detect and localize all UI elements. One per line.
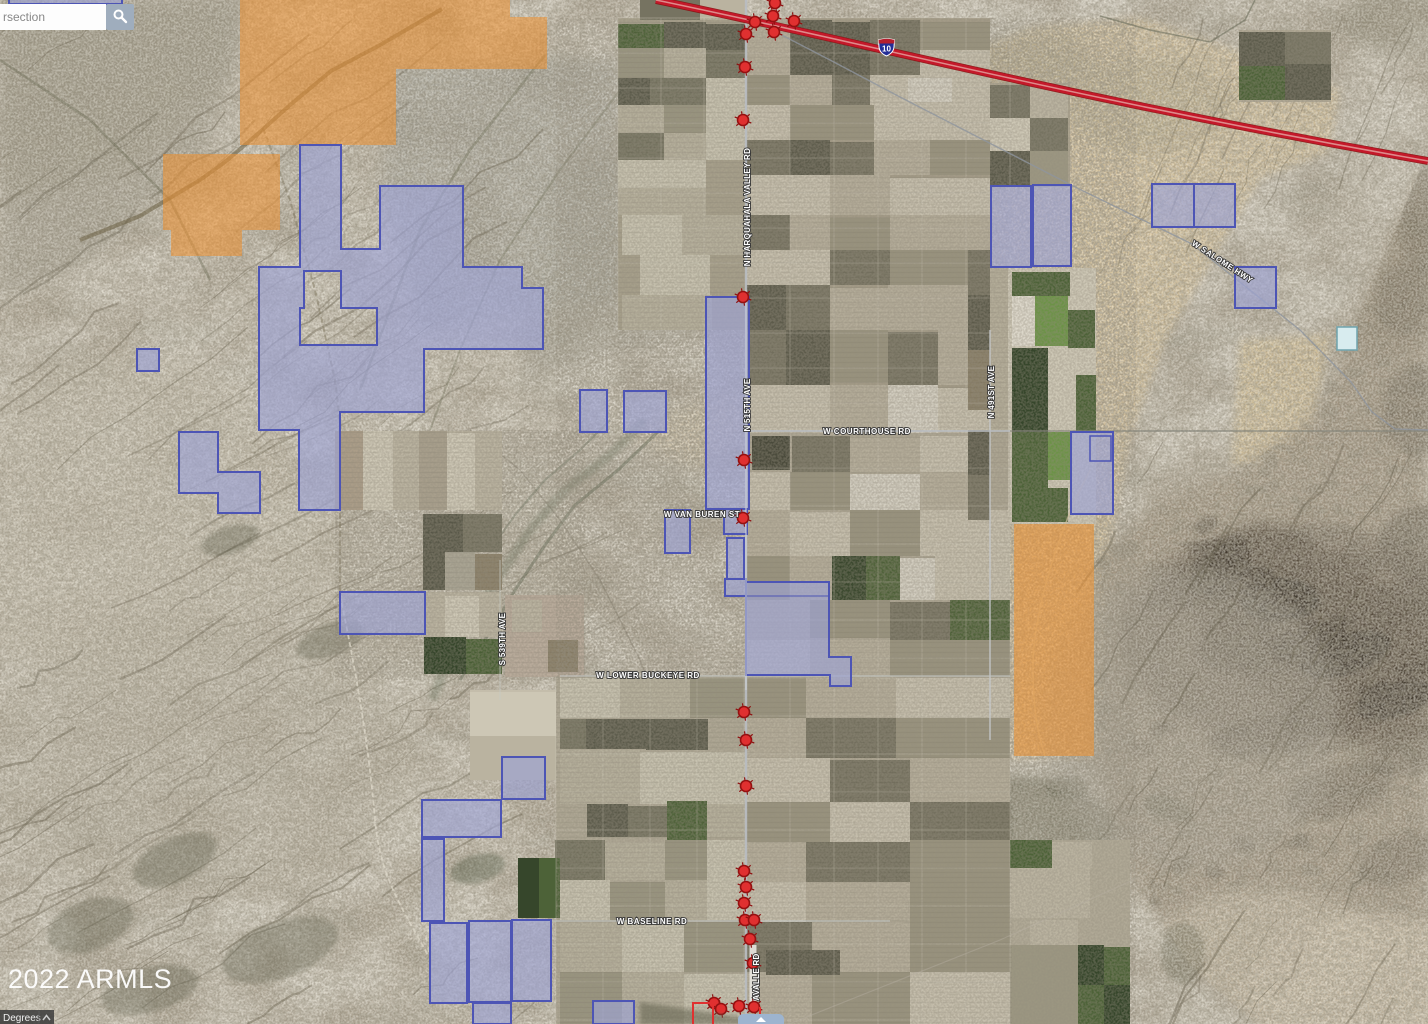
svg-text:W VAN BUREN ST: W VAN BUREN ST [664, 510, 740, 519]
svg-text:N HARQUAHALA VALLEY RD: N HARQUAHALA VALLEY RD [743, 148, 752, 266]
svg-text:W LOWER BUCKEYE RD: W LOWER BUCKEYE RD [596, 671, 700, 680]
svg-text:2022 ARMLS: 2022 ARMLS [8, 964, 172, 994]
svg-text:S 539TH AVE: S 539TH AVE [498, 612, 507, 665]
svg-text:W COURTHOUSE RD: W COURTHOUSE RD [823, 427, 911, 436]
svg-text:AVALLE RD: AVALLE RD [752, 953, 761, 1000]
svg-text:rsection: rsection [3, 10, 45, 24]
svg-text:W BASELINE RD: W BASELINE RD [617, 917, 688, 926]
svg-text:Degrees: Degrees [3, 1013, 41, 1024]
svg-text:N 515TH AVE: N 515TH AVE [743, 378, 752, 431]
svg-text:N 491ST AVE: N 491ST AVE [987, 365, 996, 418]
svg-text:10: 10 [882, 45, 891, 54]
